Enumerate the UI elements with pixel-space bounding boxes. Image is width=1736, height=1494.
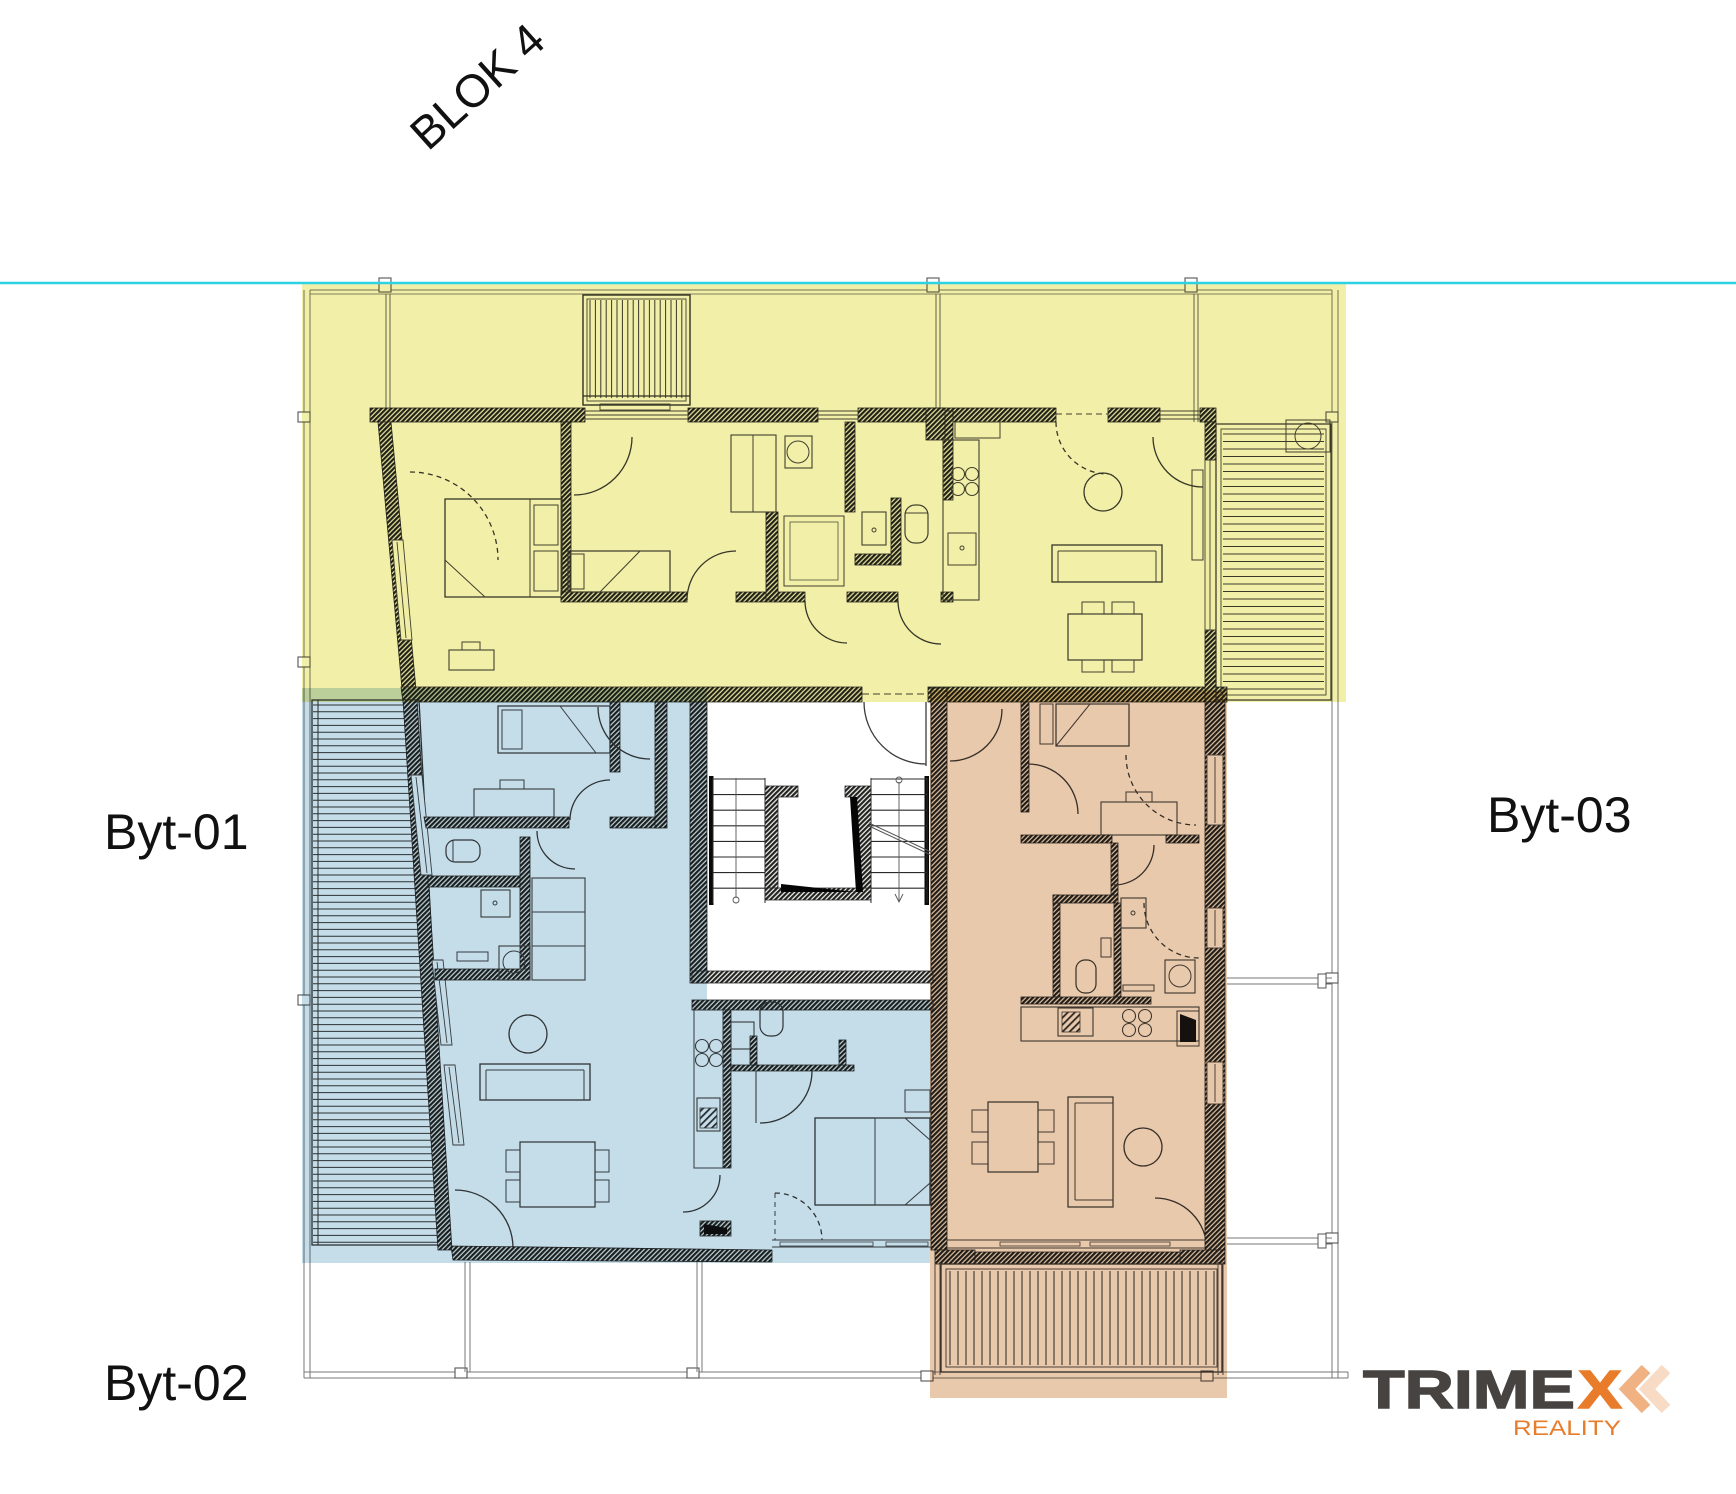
svg-text:REALITY: REALITY (1513, 1417, 1621, 1440)
svg-text:Byt-03: Byt-03 (1487, 787, 1632, 843)
svg-text:X: X (1578, 1360, 1622, 1420)
svg-text:TRIME: TRIME (1363, 1360, 1575, 1420)
svg-text:Byt-01: Byt-01 (104, 804, 249, 860)
svg-text:Byt-02: Byt-02 (104, 1355, 249, 1411)
